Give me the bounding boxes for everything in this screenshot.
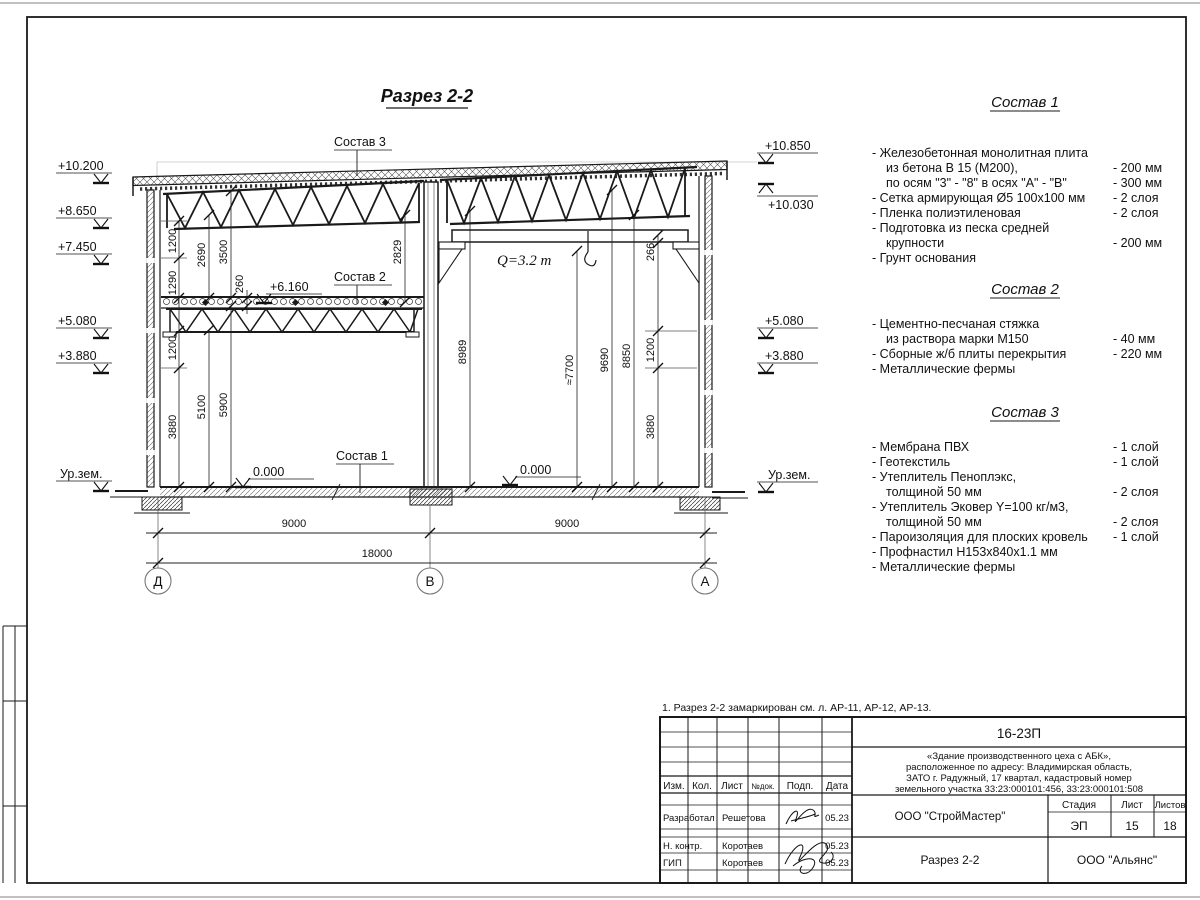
tb-sheet-number: 15 — [1125, 819, 1139, 833]
tb-col-header: Изм. — [663, 781, 684, 792]
tb-col-header: Лист — [721, 781, 743, 792]
spec-row: - Металлические фермы — [872, 362, 1015, 376]
dim-label: 8989 — [457, 340, 469, 364]
sheet-title: Разрез 2-2 — [381, 86, 473, 108]
dim-label: 3880 — [645, 415, 657, 439]
level-label: +8.650 — [58, 204, 97, 218]
sheet-canvas: Разрез 2-2 — [0, 0, 1200, 900]
composition-title: Состав 3 — [991, 404, 1059, 421]
spec-row: из раствора марки М150 — [886, 332, 1029, 346]
dim-label: 3880 — [167, 415, 179, 439]
tb-doc-number: 16-23П — [997, 726, 1041, 741]
spec-value: - 200 мм — [1113, 236, 1162, 250]
level-label: +10.850 — [765, 139, 811, 153]
spec-value: - 2 слоя — [1113, 191, 1158, 205]
dim-label: 5100 — [196, 395, 208, 419]
spec-value: - 220 мм — [1113, 347, 1162, 361]
level-label: 0.000 — [520, 463, 551, 477]
tb-stage-header: Стадия — [1062, 800, 1096, 811]
tb-org-customer: ООО "Альянс" — [1077, 853, 1157, 867]
axis-label: Д — [153, 574, 162, 589]
spec-value: - 200 мм — [1113, 161, 1162, 175]
dim-label: 9690 — [599, 348, 611, 372]
spec-row: - Профнастил Н153х840х1.1 мм — [872, 545, 1058, 559]
spec-row: - Подготовка из песка средней — [872, 221, 1049, 235]
sheet-note: 1. Разрез 2-2 замаркирован см. л. АР-11,… — [662, 702, 931, 714]
dim-label: 8850 — [621, 344, 633, 368]
tb-desc-line: «Здание производственного цеха с АБК», — [927, 751, 1111, 762]
dim-label: ≈7700 — [564, 355, 576, 386]
spec-value: - 40 мм — [1113, 332, 1155, 346]
spec-row: - Железобетонная монолитная плита — [872, 146, 1088, 160]
column-axis-b — [424, 182, 438, 487]
tb-col-header: Дата — [826, 781, 849, 792]
tb-role: Разработал — [663, 813, 715, 824]
total-span-label: 18000 — [362, 548, 393, 560]
dim-label: 2829 — [392, 240, 404, 264]
tb-drawing-name: Разрез 2-2 — [921, 853, 980, 867]
tb-sheets-total: 18 — [1163, 819, 1177, 833]
level-label: +6.160 — [270, 280, 309, 294]
dim-label: 5900 — [218, 393, 230, 417]
tb-date: 05.23 — [825, 858, 849, 869]
spec-row: - Сборные ж/б плиты перекрытия — [872, 347, 1066, 361]
level-label: +10.200 — [58, 159, 104, 173]
level-label: +5.080 — [58, 314, 97, 328]
dim-label: 3500 — [218, 240, 230, 264]
tb-col-header: Подп. — [787, 781, 814, 792]
spec-row: крупности — [886, 236, 944, 250]
spec-row: - Грунт основания — [872, 251, 976, 265]
spec-value: - 2 слоя — [1113, 206, 1158, 220]
spec-row: - Цементно-песчаная стяжка — [872, 317, 1039, 331]
page-title: Разрез 2-2 — [381, 86, 473, 106]
axis-label: А — [700, 574, 709, 589]
tb-role: ГИП — [663, 858, 682, 869]
dim-label: 266 — [645, 243, 657, 261]
dim-label: 2690 — [196, 243, 208, 267]
tb-date: 05.23 — [825, 841, 849, 852]
spec-row: - Металлические фермы — [872, 560, 1015, 574]
dim-label: 1200 — [167, 229, 179, 253]
tb-col-header: №док. — [751, 782, 774, 791]
spec-row: из бетона В 15 (М200), — [886, 161, 1018, 175]
tb-role: Н. контр. — [663, 841, 702, 852]
tb-stage-header: Лист — [1121, 800, 1143, 811]
span-dim-label: 9000 — [555, 518, 579, 530]
level-label: +3.880 — [765, 349, 804, 363]
spec-row: по осям "3" - "8" в осях "А" - "В" — [886, 176, 1067, 190]
tb-name: Решетова — [722, 813, 766, 824]
tb-desc-line: расположенное по адресу: Владимирская об… — [906, 762, 1132, 773]
leader-label: Состав 1 — [336, 449, 388, 463]
spec-value: - 1 слой — [1113, 440, 1159, 454]
leader-label: Состав 3 — [334, 135, 386, 149]
axis-label: В — [425, 574, 434, 589]
dim-label: 1290 — [167, 271, 179, 295]
level-label: 0.000 — [253, 465, 284, 479]
level-label: Ур.зем. — [60, 467, 102, 481]
tb-stage-value: ЭП — [1070, 819, 1087, 833]
spec-value: - 300 мм — [1113, 176, 1162, 190]
level-label: +5.080 — [765, 314, 804, 328]
spec-row: толщиной 50 мм — [886, 515, 982, 529]
dim-label: 1200 — [167, 336, 179, 360]
composition-title: Состав 1 — [991, 94, 1059, 111]
tb-date: 05.23 — [825, 813, 849, 824]
tb-desc-line: ЗАТО г. Радужный, 17 квартал, кадастровы… — [906, 773, 1132, 784]
spec-row: - Мембрана ПВХ — [872, 440, 970, 454]
composition-title: Состав 2 — [991, 281, 1059, 298]
dim-label: 260 — [234, 275, 246, 293]
spec-row: - Пароизоляция для плоских кровель — [872, 530, 1088, 544]
leader-label: Состав 2 — [334, 270, 386, 284]
crane-capacity-label: Q=3.2 т — [497, 253, 551, 269]
spec-row: - Сетка армирующая Ø5 100х100 мм — [872, 191, 1085, 205]
tb-desc-line: земельного участка 33:23:000101:456, 33:… — [895, 784, 1143, 795]
tb-col-header: Кол. — [692, 781, 712, 792]
level-label: +7.450 — [58, 240, 97, 254]
tb-name: Коротаев — [722, 858, 763, 869]
level-label: Ур.зем. — [768, 468, 810, 482]
tb-name: Коротаев — [722, 841, 763, 852]
drawing-sheet: Разрез 2-2 — [0, 0, 1200, 900]
spec-value: - 1 слой — [1113, 530, 1159, 544]
tb-org-developer: ООО "СтройМастер" — [895, 811, 1006, 823]
spec-row: - Пленка полиэтиленовая — [872, 206, 1021, 220]
spec-row: - Утеплитель Пеноплэкс, — [872, 470, 1016, 484]
dim-label: 1200 — [645, 338, 657, 362]
spec-value: - 2 слоя — [1113, 515, 1158, 529]
level-label: +3.880 — [58, 349, 97, 363]
level-label: +10.030 — [768, 198, 814, 212]
spec-row: - Утеплитель Эковер Y=100 кг/м3, — [872, 500, 1068, 514]
spec-value: - 1 слой — [1113, 455, 1159, 469]
spec-row: - Геотекстиль — [872, 455, 950, 469]
spec-value: - 2 слоя — [1113, 485, 1158, 499]
spec-row: толщиной 50 мм — [886, 485, 982, 499]
span-dim-label: 9000 — [282, 518, 306, 530]
tb-stage-header: Листов — [1155, 800, 1186, 811]
